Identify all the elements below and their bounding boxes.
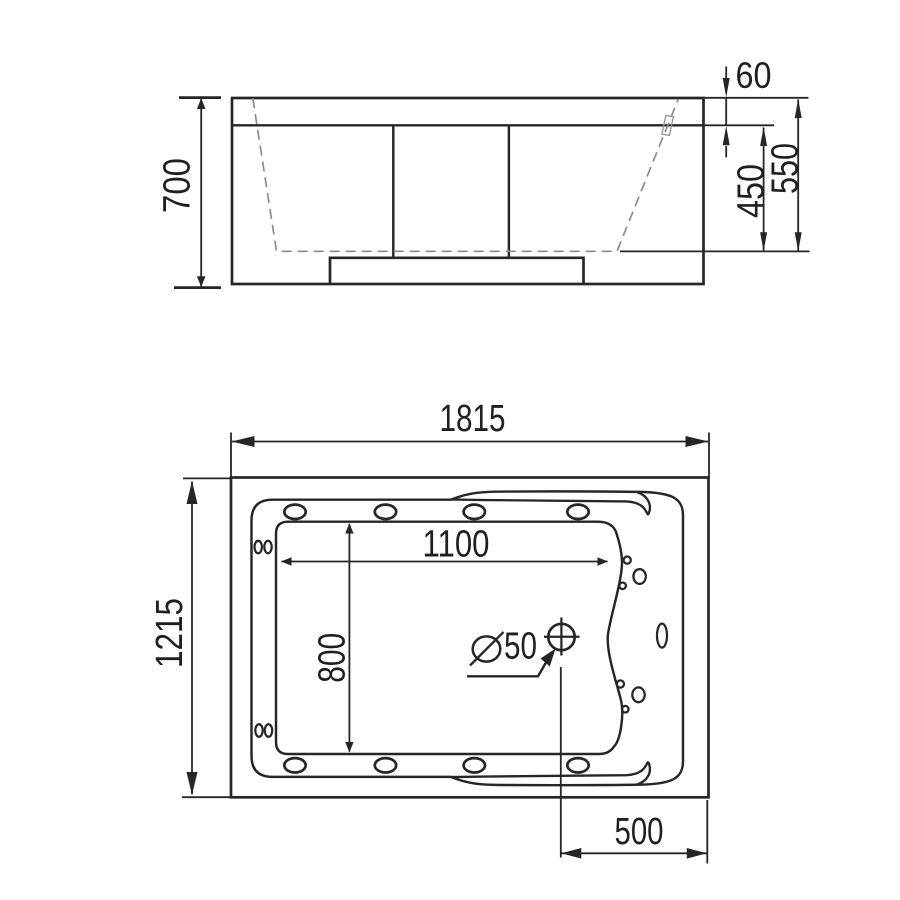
svg-text:550: 550 [764,143,806,194]
svg-text:1100: 1100 [423,524,490,566]
svg-text:1815: 1815 [440,398,506,440]
svg-text:500: 500 [615,811,664,853]
svg-text:700: 700 [157,158,199,213]
svg-text:1215: 1215 [149,598,191,668]
svg-text:50: 50 [504,626,537,668]
svg-text:60: 60 [736,55,772,96]
svg-text:800: 800 [312,633,354,683]
